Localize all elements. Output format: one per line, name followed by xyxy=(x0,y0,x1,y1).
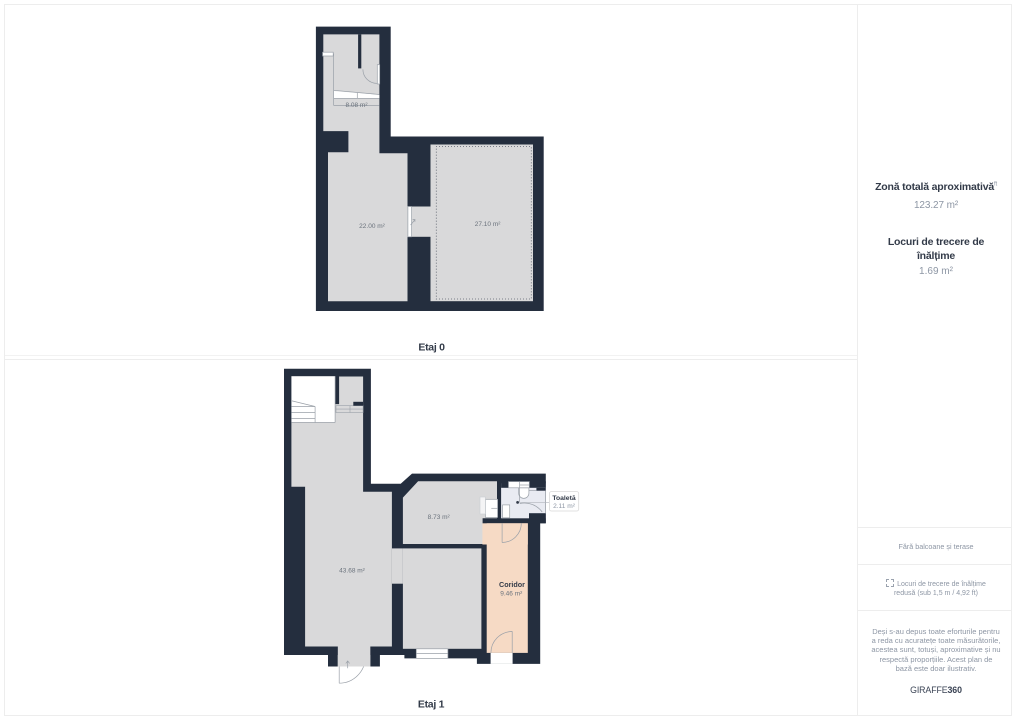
svg-text:2.11 m²: 2.11 m² xyxy=(553,503,576,510)
svg-text:Etaj 1: Etaj 1 xyxy=(418,699,445,711)
svg-text:8.08 m²: 8.08 m² xyxy=(345,102,368,109)
svg-text:Toaletă: Toaletă xyxy=(552,495,576,502)
svg-text:43.68 m²: 43.68 m² xyxy=(339,568,365,575)
svg-text:Coridor: Coridor xyxy=(499,580,525,589)
svg-text:27.10 m²: 27.10 m² xyxy=(475,221,501,228)
svg-text:Etaj 0: Etaj 0 xyxy=(418,342,445,354)
svg-text:22.00 m²: 22.00 m² xyxy=(359,223,385,230)
svg-text:8.73 m²: 8.73 m² xyxy=(428,514,451,521)
svg-text:9.46 m²: 9.46 m² xyxy=(500,591,523,598)
